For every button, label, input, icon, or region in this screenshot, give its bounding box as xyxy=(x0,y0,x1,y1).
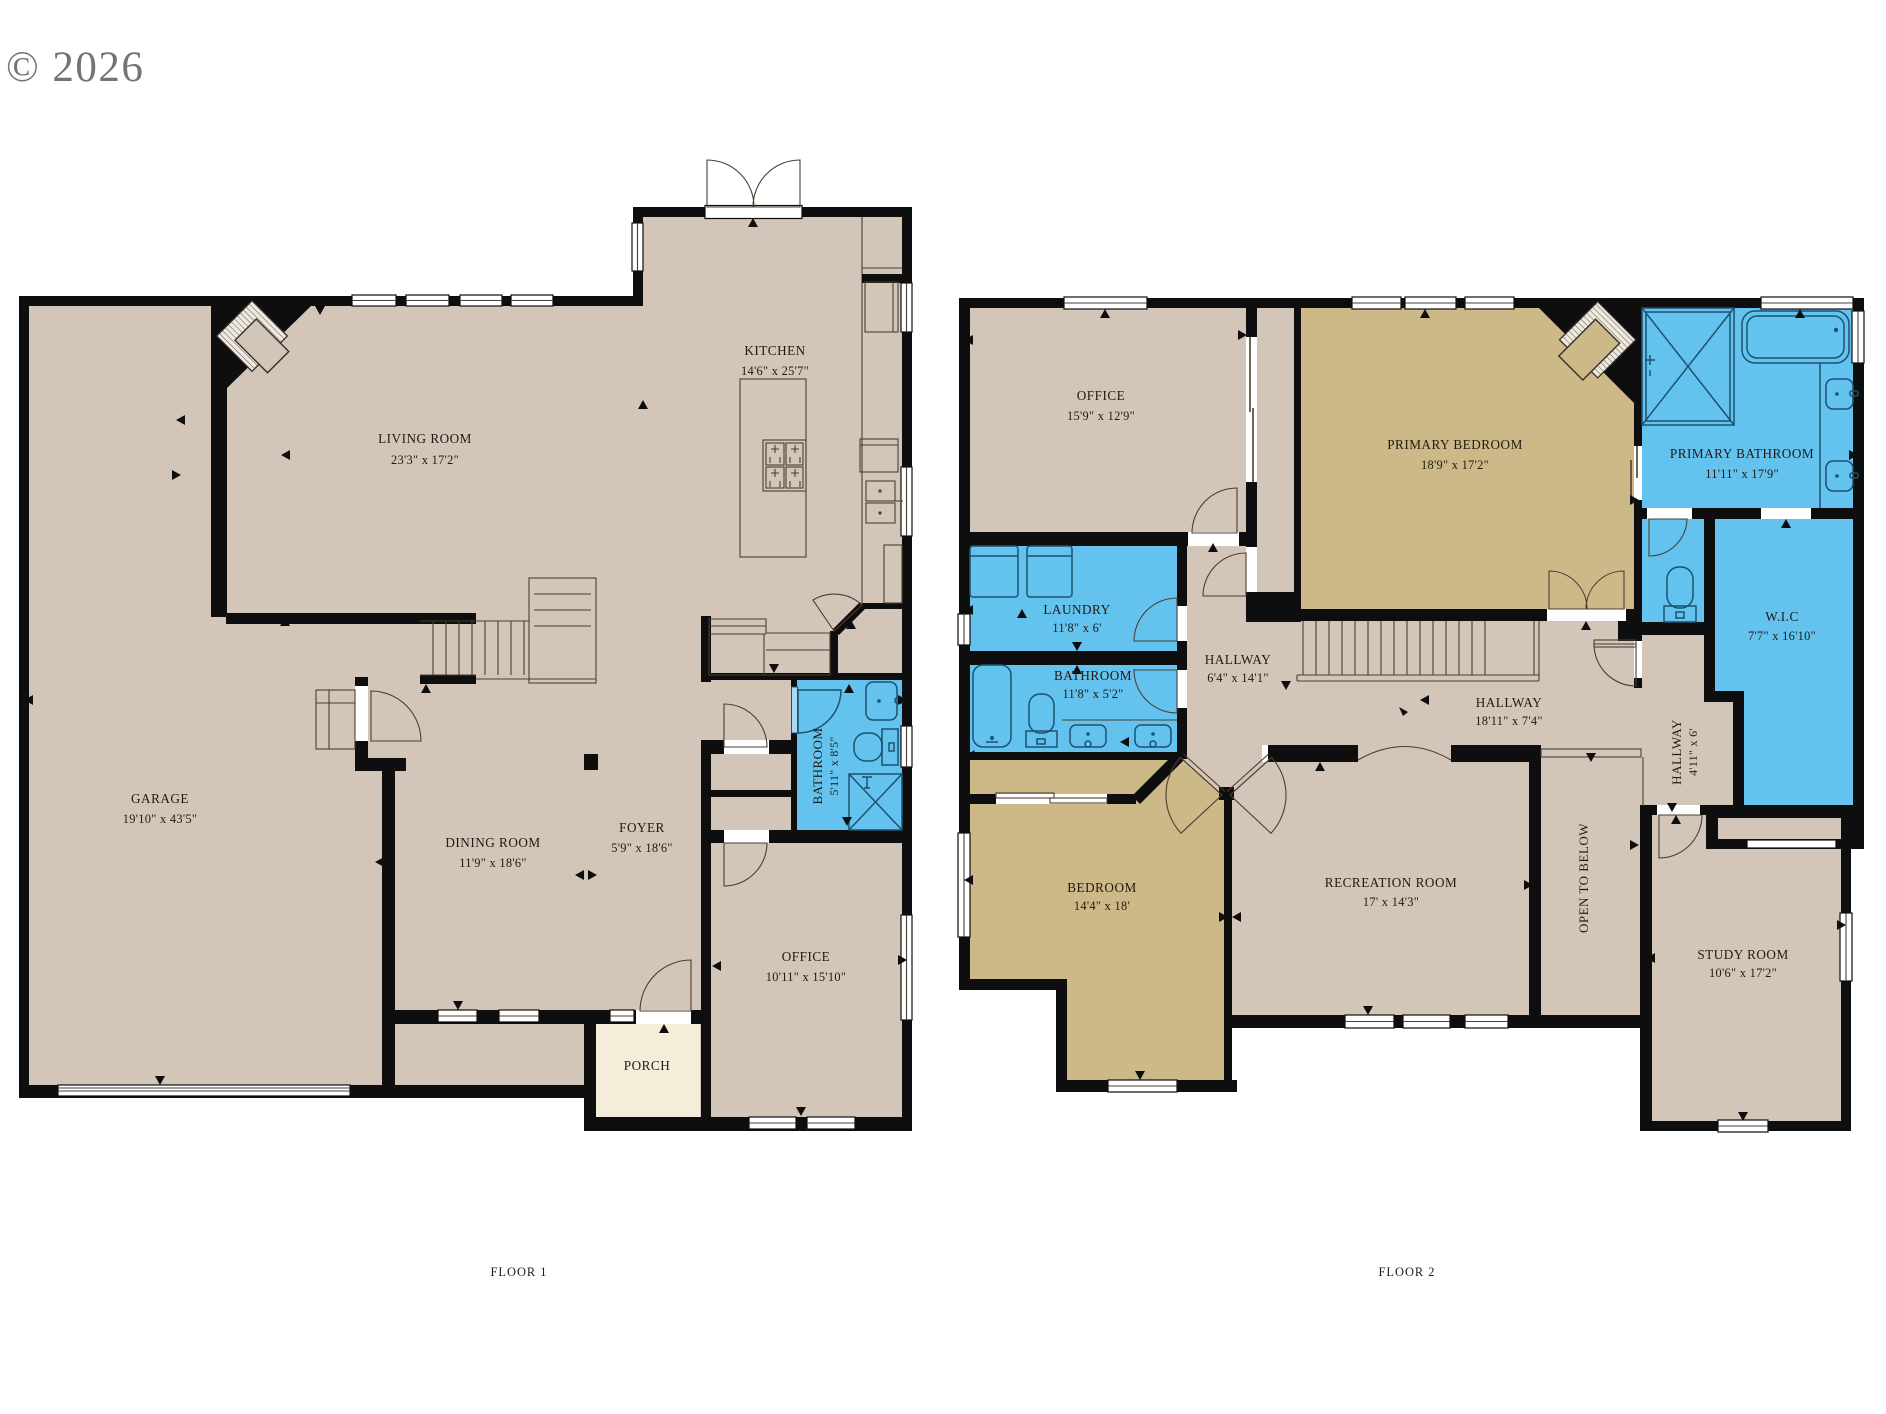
svg-text:FOYER: FOYER xyxy=(619,820,665,835)
svg-text:11'8" x 5'2": 11'8" x 5'2" xyxy=(1062,687,1123,701)
svg-text:HALLWAY: HALLWAY xyxy=(1669,719,1684,785)
svg-text:PRIMARY BATHROOM: PRIMARY BATHROOM xyxy=(1670,446,1814,461)
svg-text:BEDROOM: BEDROOM xyxy=(1067,880,1136,895)
svg-text:PORCH: PORCH xyxy=(624,1058,670,1073)
svg-text:18'11" x 7'4": 18'11" x 7'4" xyxy=(1475,714,1543,728)
svg-text:FLOOR 2: FLOOR 2 xyxy=(1379,1265,1436,1279)
svg-text:4'11" x 6': 4'11" x 6' xyxy=(1686,728,1700,776)
svg-text:11'8" x 6': 11'8" x 6' xyxy=(1052,621,1101,635)
svg-text:17' x 14'3": 17' x 14'3" xyxy=(1363,895,1419,909)
svg-text:OPEN TO BELOW: OPEN TO BELOW xyxy=(1576,823,1591,933)
svg-text:PRIMARY BEDROOM: PRIMARY BEDROOM xyxy=(1387,437,1523,452)
svg-text:23'3" x 17'2": 23'3" x 17'2" xyxy=(391,453,459,467)
svg-text:BATHROOM: BATHROOM xyxy=(1054,668,1132,683)
svg-text:10'11" x 15'10": 10'11" x 15'10" xyxy=(766,970,847,984)
svg-text:18'9" x 17'2": 18'9" x 17'2" xyxy=(1421,458,1489,472)
svg-text:HALLWAY: HALLWAY xyxy=(1476,695,1543,710)
svg-text:GARAGE: GARAGE xyxy=(131,791,189,806)
svg-text:14'6" x 25'7": 14'6" x 25'7" xyxy=(741,364,809,378)
svg-text:6'4" x 14'1": 6'4" x 14'1" xyxy=(1207,671,1269,685)
svg-text:HALLWAY: HALLWAY xyxy=(1205,652,1272,667)
svg-text:OFFICE: OFFICE xyxy=(1077,388,1125,403)
svg-text:5'11" x 8'5": 5'11" x 8'5" xyxy=(827,736,841,795)
svg-text:DINING ROOM: DINING ROOM xyxy=(445,835,540,850)
svg-text:FLOOR 1: FLOOR 1 xyxy=(491,1265,548,1279)
svg-text:19'10" x 43'5": 19'10" x 43'5" xyxy=(123,812,198,826)
svg-text:11'11" x 17'9": 11'11" x 17'9" xyxy=(1705,467,1779,481)
svg-text:OFFICE: OFFICE xyxy=(782,949,830,964)
svg-text:LAUNDRY: LAUNDRY xyxy=(1043,602,1110,617)
svg-text:© 2026: © 2026 xyxy=(6,44,144,91)
svg-text:LIVING ROOM: LIVING ROOM xyxy=(378,431,472,446)
svg-text:7'7" x 16'10": 7'7" x 16'10" xyxy=(1748,629,1816,643)
svg-text:10'6" x 17'2": 10'6" x 17'2" xyxy=(1709,966,1777,980)
svg-text:14'4" x 18': 14'4" x 18' xyxy=(1074,899,1130,913)
svg-text:BATHROOM: BATHROOM xyxy=(810,728,825,805)
svg-text:STUDY ROOM: STUDY ROOM xyxy=(1697,947,1788,962)
svg-text:5'9" x 18'6": 5'9" x 18'6" xyxy=(611,841,673,855)
svg-text:15'9" x 12'9": 15'9" x 12'9" xyxy=(1067,409,1135,423)
svg-text:RECREATION ROOM: RECREATION ROOM xyxy=(1325,875,1457,890)
svg-text:11'9" x 18'6": 11'9" x 18'6" xyxy=(459,856,527,870)
svg-text:W.I.C: W.I.C xyxy=(1765,609,1799,624)
svg-text:KITCHEN: KITCHEN xyxy=(744,343,805,358)
